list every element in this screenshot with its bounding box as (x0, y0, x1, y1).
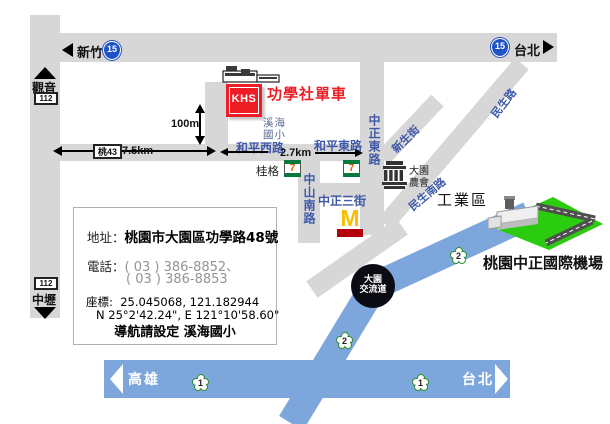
shield-number: 2 (450, 251, 467, 261)
coord-label: 座標: (86, 295, 113, 309)
interchange-line-2: 交流道 (351, 285, 395, 295)
arrowhead-down-100m (195, 136, 205, 145)
label-kaohsiung: 高雄 (128, 369, 160, 389)
airport-road-lower-dash (546, 221, 592, 243)
store-name: 功學社單車 (267, 83, 347, 104)
school-line-1: 溪海 (263, 117, 286, 129)
arrowhead-up-100m (195, 104, 205, 113)
dayuan-farmers-association-icon (382, 161, 407, 189)
farmers-line-1: 大園 (409, 166, 429, 177)
label-taipei-bottom: 台北 (462, 369, 494, 389)
seven-eleven-icon-west: 7 (284, 160, 301, 177)
label-zhongshan-south-rd: 中山南路 (301, 173, 318, 225)
arrow-line-heping-east (315, 152, 355, 154)
arrowhead-right-7-5km (207, 146, 216, 156)
arrowhead-heping-west (220, 148, 228, 156)
label-hsinchu: 新竹 (77, 42, 103, 61)
info-box: 地址：桃園市大園區功學路48號 電話：( 03 ) 386-8852、 ( 03… (73, 207, 277, 345)
airport-road-lower (546, 221, 592, 243)
shield-number: 1 (412, 378, 429, 388)
label-airport: 桃園中正國際機場 (483, 252, 603, 273)
address-value: 桃園市大園區功學路48號 (125, 230, 279, 246)
coord-decimal: 25.045068, 121.182944 (120, 295, 259, 309)
label-zhongli: 中壢 (32, 291, 56, 308)
road-gongxue (205, 82, 228, 144)
arrow-east-taipei (543, 40, 554, 54)
airport-road-upper-dash (536, 206, 595, 219)
label-100m: 100m (171, 118, 199, 130)
mcdonalds-arches: M (337, 207, 363, 229)
shield-freeway-2-lower: 2 (336, 332, 353, 349)
shield-freeway-1-left: 1 (192, 374, 209, 391)
shield-freeway-1-right: 1 (412, 374, 429, 391)
label-farmers-association: 大園 農會 (409, 166, 429, 189)
farmers-line-2: 農會 (409, 178, 429, 189)
mcdonalds-base (337, 229, 363, 237)
distance-line-100m (199, 112, 201, 137)
khs-store-marker: KHS (226, 84, 262, 117)
label-industrial-zone: 工業區 (437, 189, 488, 210)
label-quaker: 桂格 (256, 163, 279, 179)
label-zhongzheng-east-rd: 中正東路 (366, 114, 383, 166)
road-county-112 (30, 15, 60, 318)
school-line-2: 國小 (263, 129, 286, 141)
arrow-taipei-bottom (495, 364, 508, 394)
coord-dms-row: N 25°2'42.24", E 121°10'58.60" (96, 308, 279, 322)
sign-tao43: 桃43 (93, 144, 122, 159)
interchange-line-1: 大園 (351, 275, 395, 285)
arrowhead-left-7-5km (53, 146, 62, 156)
arrow-west-hsinchu (62, 43, 73, 57)
interchange-circle: 大園 交流道 (351, 264, 395, 308)
route-map: 新竹 15 15 台北 觀音 112 112 中壢 桃43 7.5km 100m… (0, 0, 610, 424)
arrow-kaohsiung (110, 364, 123, 394)
arrowhead-heping-east (355, 149, 363, 157)
khs-factory-icon (223, 66, 279, 82)
seven-eleven-icon-east: 7 (343, 160, 360, 177)
shield-freeway-2-upper: 2 (450, 247, 467, 264)
shield-number: 2 (336, 336, 353, 346)
phone-label: 電話： (87, 259, 125, 274)
shield-number: 1 (192, 378, 209, 388)
seven-eleven-glyph: 7 (344, 164, 359, 173)
airport-road-upper (536, 206, 595, 219)
arrow-south-zhongli (34, 307, 56, 319)
arrow-line-heping-west (228, 151, 268, 153)
khs-logo-text: KHS (226, 93, 262, 105)
address-label: 地址： (87, 230, 125, 245)
seven-eleven-glyph: 7 (285, 164, 300, 173)
shield-112-north: 112 (34, 92, 58, 105)
label-heping-west-rd: 和平西路 (236, 139, 284, 156)
label-xinsheng-st: 新生街 (388, 122, 423, 156)
label-2-7km: 2.7km (280, 147, 311, 159)
mcdonalds-icon: M (337, 210, 363, 237)
shield-112-south: 112 (34, 277, 58, 290)
nav-hint-row: 導航請設定 溪海國小 (74, 321, 276, 340)
label-taipei-top: 台北 (514, 40, 540, 59)
label-7-5km: 7.5km (122, 145, 153, 157)
address-row: 地址：桃園市大園區功學路48號 (87, 226, 278, 246)
label-xihai-school: 溪海 國小 (263, 117, 286, 141)
phone-row-2: ( 03 ) 386-8853 (126, 272, 228, 287)
arrow-north-guanyin (34, 67, 56, 79)
